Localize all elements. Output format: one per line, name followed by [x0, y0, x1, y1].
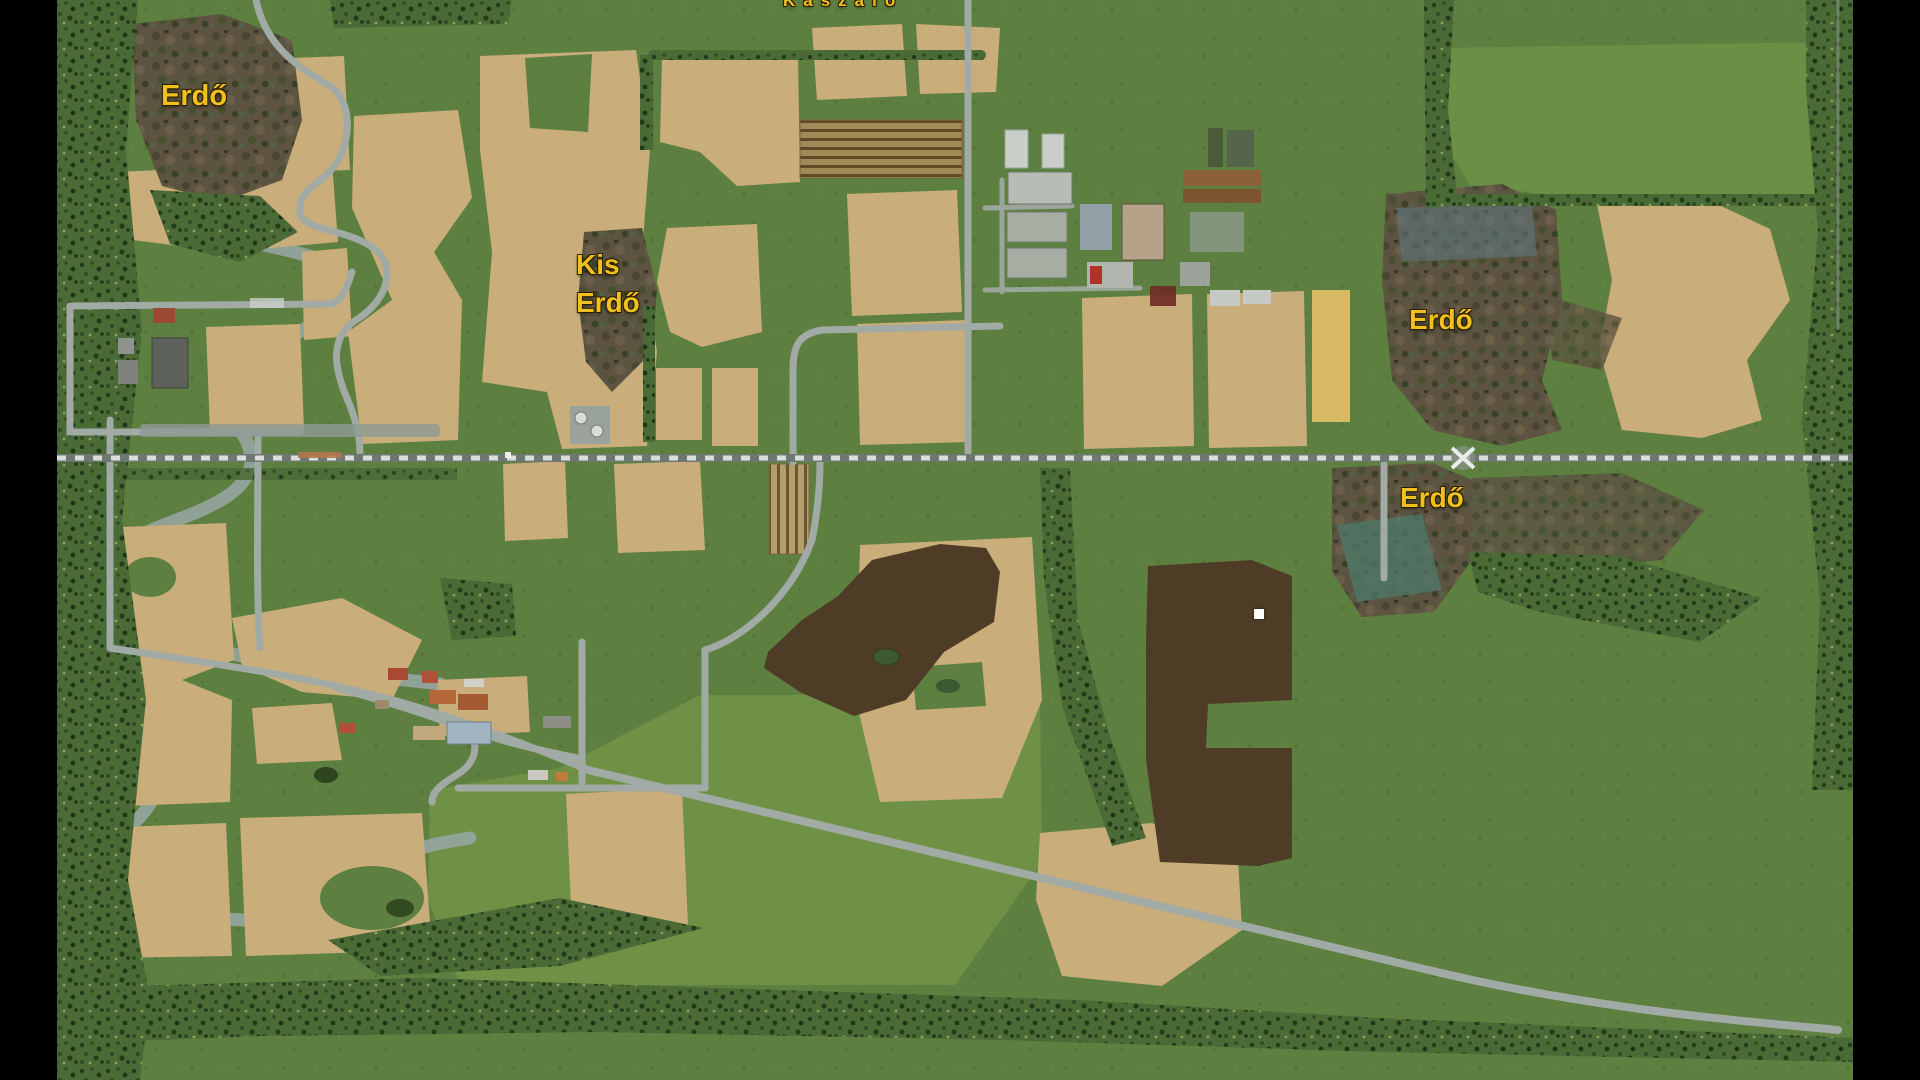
letterbox-left	[0, 0, 57, 1080]
terrain-map	[0, 0, 1920, 1080]
pond-in-plowed-field	[873, 649, 899, 665]
letterbox-right	[1853, 0, 1920, 1080]
map-label-erdo-east-upper: Erdő	[1409, 304, 1473, 336]
tank-facility	[570, 406, 610, 444]
rail-small-marker	[505, 452, 511, 458]
map-label-kis-erdo: KisErdő	[576, 246, 640, 322]
map-label-kaszalo: Kaszáló	[783, 0, 903, 11]
vineyard-center	[769, 464, 809, 554]
grass-field-northeast	[1432, 42, 1843, 206]
swamp-patch	[1396, 203, 1537, 262]
kis-erdo-line2: Erdő	[576, 287, 640, 318]
game-map-screen[interactable]: Kaszáló Erdő KisErdő Erdő Erdő	[0, 0, 1920, 1080]
map-label-erdo-northwest: Erdő	[161, 80, 227, 113]
white-waypoint-dot[interactable]	[1254, 609, 1264, 619]
map-label-erdo-east-lower: Erdő	[1400, 482, 1464, 514]
vineyard-north	[800, 120, 962, 178]
kis-erdo-line1: Kis	[576, 249, 620, 280]
roadside-strip	[140, 424, 440, 437]
